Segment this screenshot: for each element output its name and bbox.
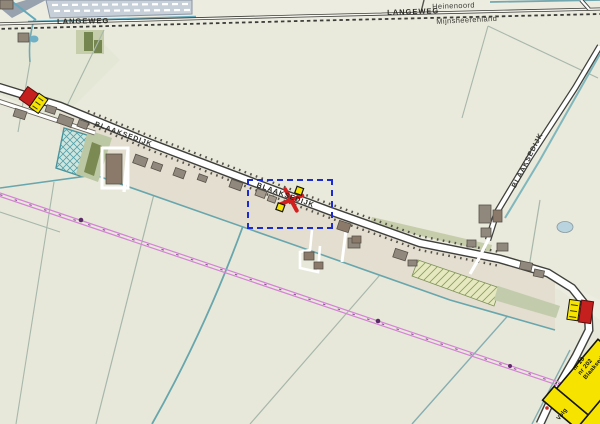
sign-east[interactable]: [567, 298, 594, 323]
place-label-heinenoord: Heinenoord: [432, 1, 475, 11]
map-viewport[interactable]: LANGEWEG LANGEWEG Heinenoord Mijnsheeren…: [0, 0, 600, 424]
road-label-langeweg-west: LANGEWEG: [57, 16, 109, 26]
